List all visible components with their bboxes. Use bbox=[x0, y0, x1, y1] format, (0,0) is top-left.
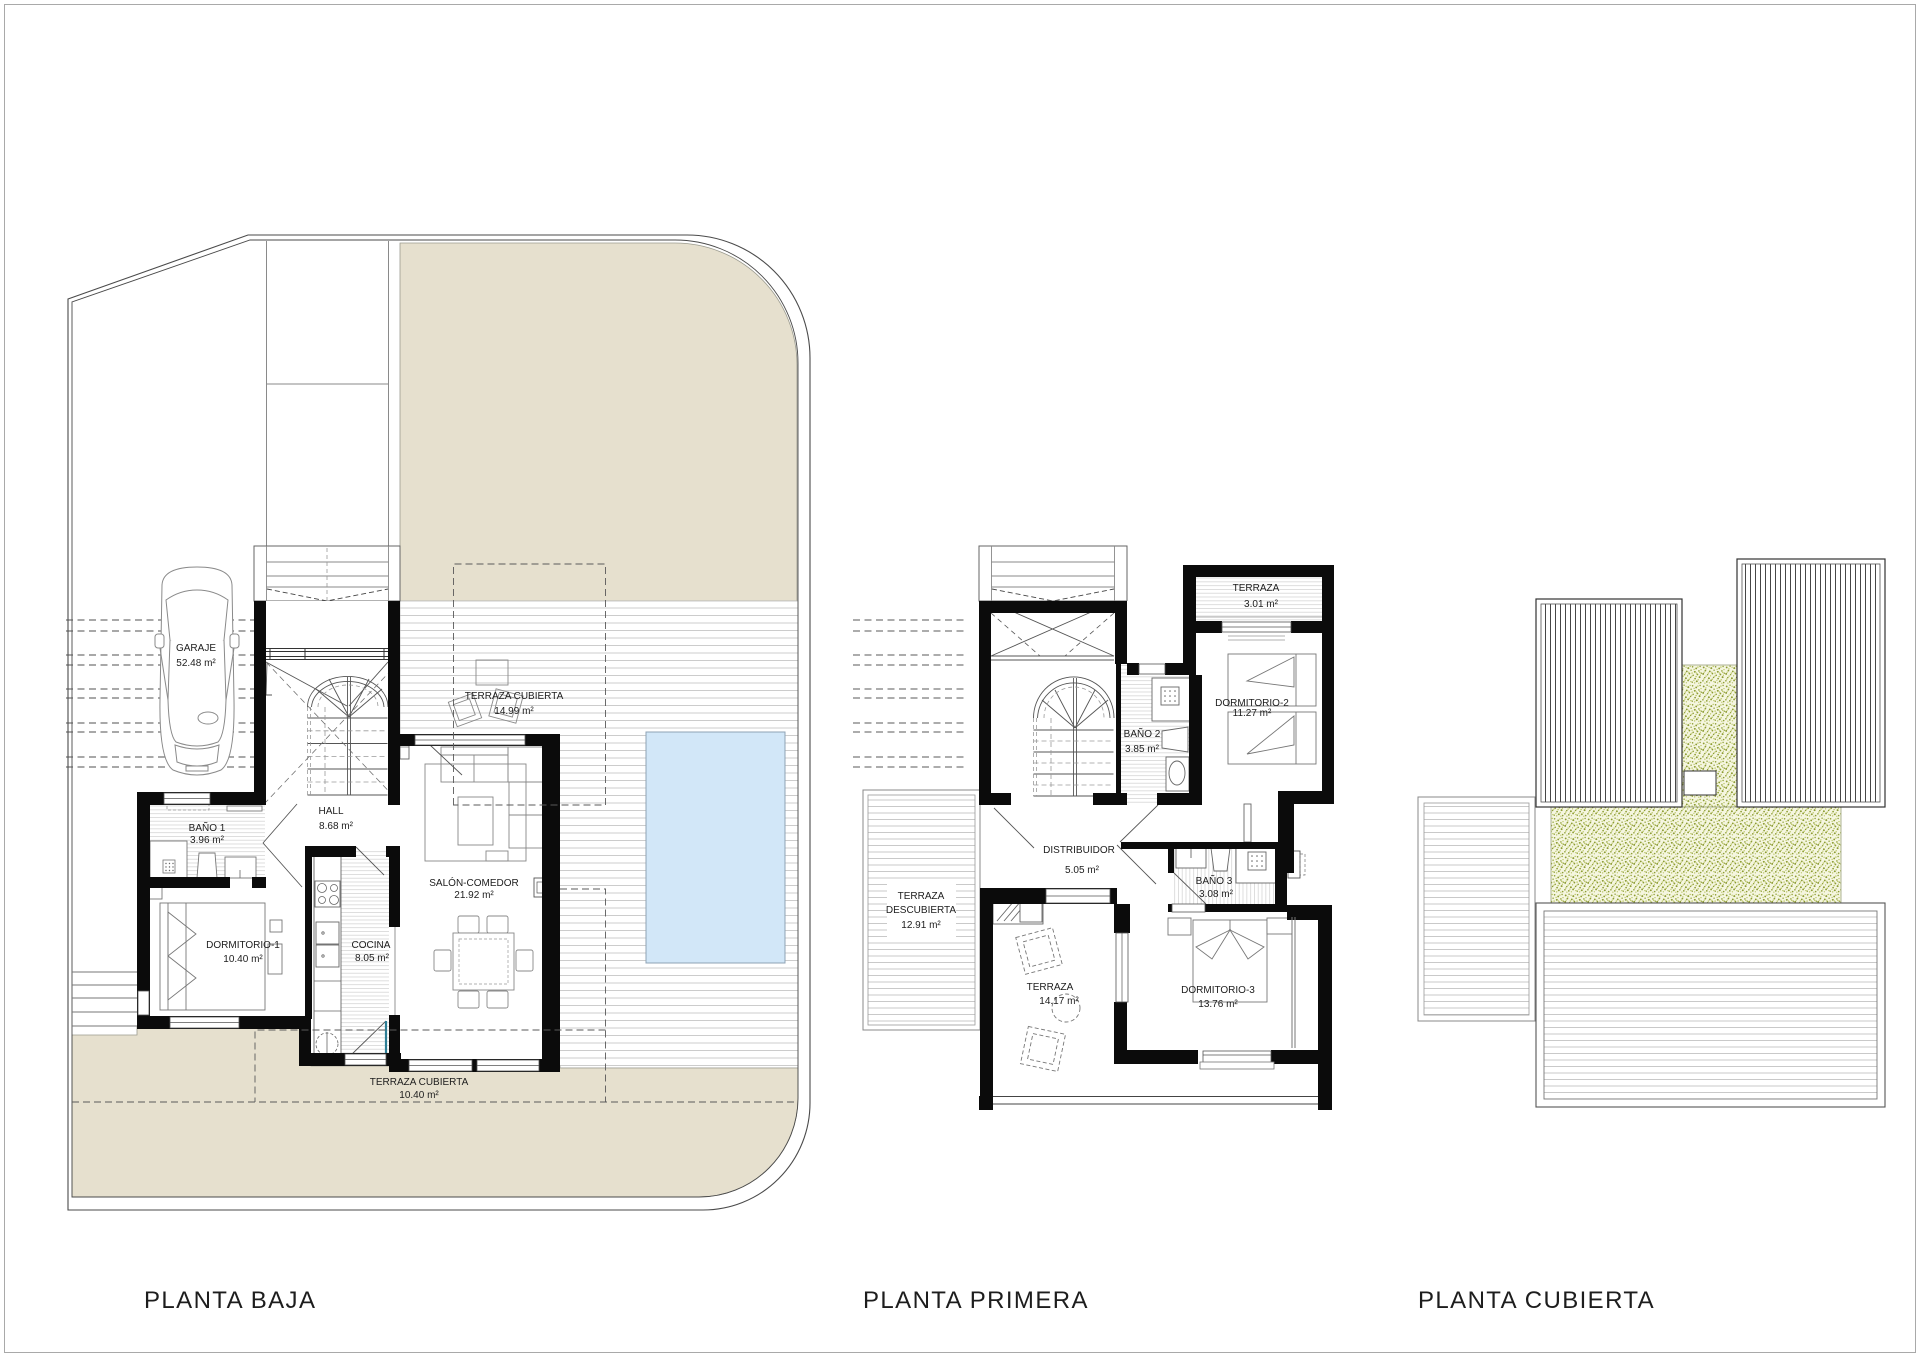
svg-text:8.05 m²: 8.05 m² bbox=[355, 953, 390, 964]
svg-text:GARAJE: GARAJE bbox=[176, 643, 216, 654]
svg-text:TERRAZA: TERRAZA bbox=[1233, 583, 1280, 594]
svg-text:DORMITORIO-3: DORMITORIO-3 bbox=[1181, 985, 1255, 996]
svg-text:PLANTA PRIMERA: PLANTA PRIMERA bbox=[863, 1287, 1089, 1314]
svg-text:TERRAZA CUBIERTA: TERRAZA CUBIERTA bbox=[465, 691, 564, 702]
svg-text:TERRAZA: TERRAZA bbox=[898, 891, 945, 902]
svg-text:5.05 m²: 5.05 m² bbox=[1065, 865, 1100, 876]
svg-text:DISTRIBUIDOR: DISTRIBUIDOR bbox=[1043, 845, 1115, 856]
svg-text:10.40 m²: 10.40 m² bbox=[223, 954, 263, 965]
svg-text:3.08 m²: 3.08 m² bbox=[1199, 889, 1234, 900]
svg-text:TERRAZA CUBIERTA: TERRAZA CUBIERTA bbox=[370, 1077, 469, 1088]
svg-text:12.91 m²: 12.91 m² bbox=[901, 920, 941, 931]
svg-text:13.76 m²: 13.76 m² bbox=[1198, 999, 1238, 1010]
svg-text:3.85 m²: 3.85 m² bbox=[1125, 744, 1160, 755]
svg-text:DESCUBIERTA: DESCUBIERTA bbox=[886, 905, 957, 916]
svg-text:8.68 m²: 8.68 m² bbox=[319, 821, 354, 832]
svg-text:BAÑO 2: BAÑO 2 bbox=[1124, 727, 1161, 740]
svg-text:TERRAZA: TERRAZA bbox=[1027, 982, 1074, 993]
svg-text:SALÓN-COMEDOR: SALÓN-COMEDOR bbox=[429, 876, 518, 889]
svg-text:HALL: HALL bbox=[318, 806, 343, 817]
svg-text:14.17 m²: 14.17 m² bbox=[1039, 996, 1079, 1007]
svg-text:21.92 m²: 21.92 m² bbox=[454, 890, 494, 901]
svg-text:PLANTA BAJA: PLANTA BAJA bbox=[144, 1287, 316, 1314]
svg-text:BAÑO 1: BAÑO 1 bbox=[189, 821, 226, 834]
svg-text:BAÑO 3: BAÑO 3 bbox=[1196, 874, 1233, 887]
svg-text:11.27 m²: 11.27 m² bbox=[1233, 708, 1272, 719]
svg-text:COCINA: COCINA bbox=[352, 940, 391, 951]
svg-text:PLANTA CUBIERTA: PLANTA CUBIERTA bbox=[1418, 1287, 1655, 1314]
svg-text:52.48 m²: 52.48 m² bbox=[176, 658, 216, 669]
svg-text:3.01 m²: 3.01 m² bbox=[1244, 599, 1279, 610]
svg-text:DORMITORIO-1: DORMITORIO-1 bbox=[206, 940, 280, 951]
svg-text:3.96 m²: 3.96 m² bbox=[190, 835, 225, 846]
svg-text:10.40 m²: 10.40 m² bbox=[399, 1090, 439, 1101]
svg-text:14.99 m²: 14.99 m² bbox=[494, 706, 534, 717]
